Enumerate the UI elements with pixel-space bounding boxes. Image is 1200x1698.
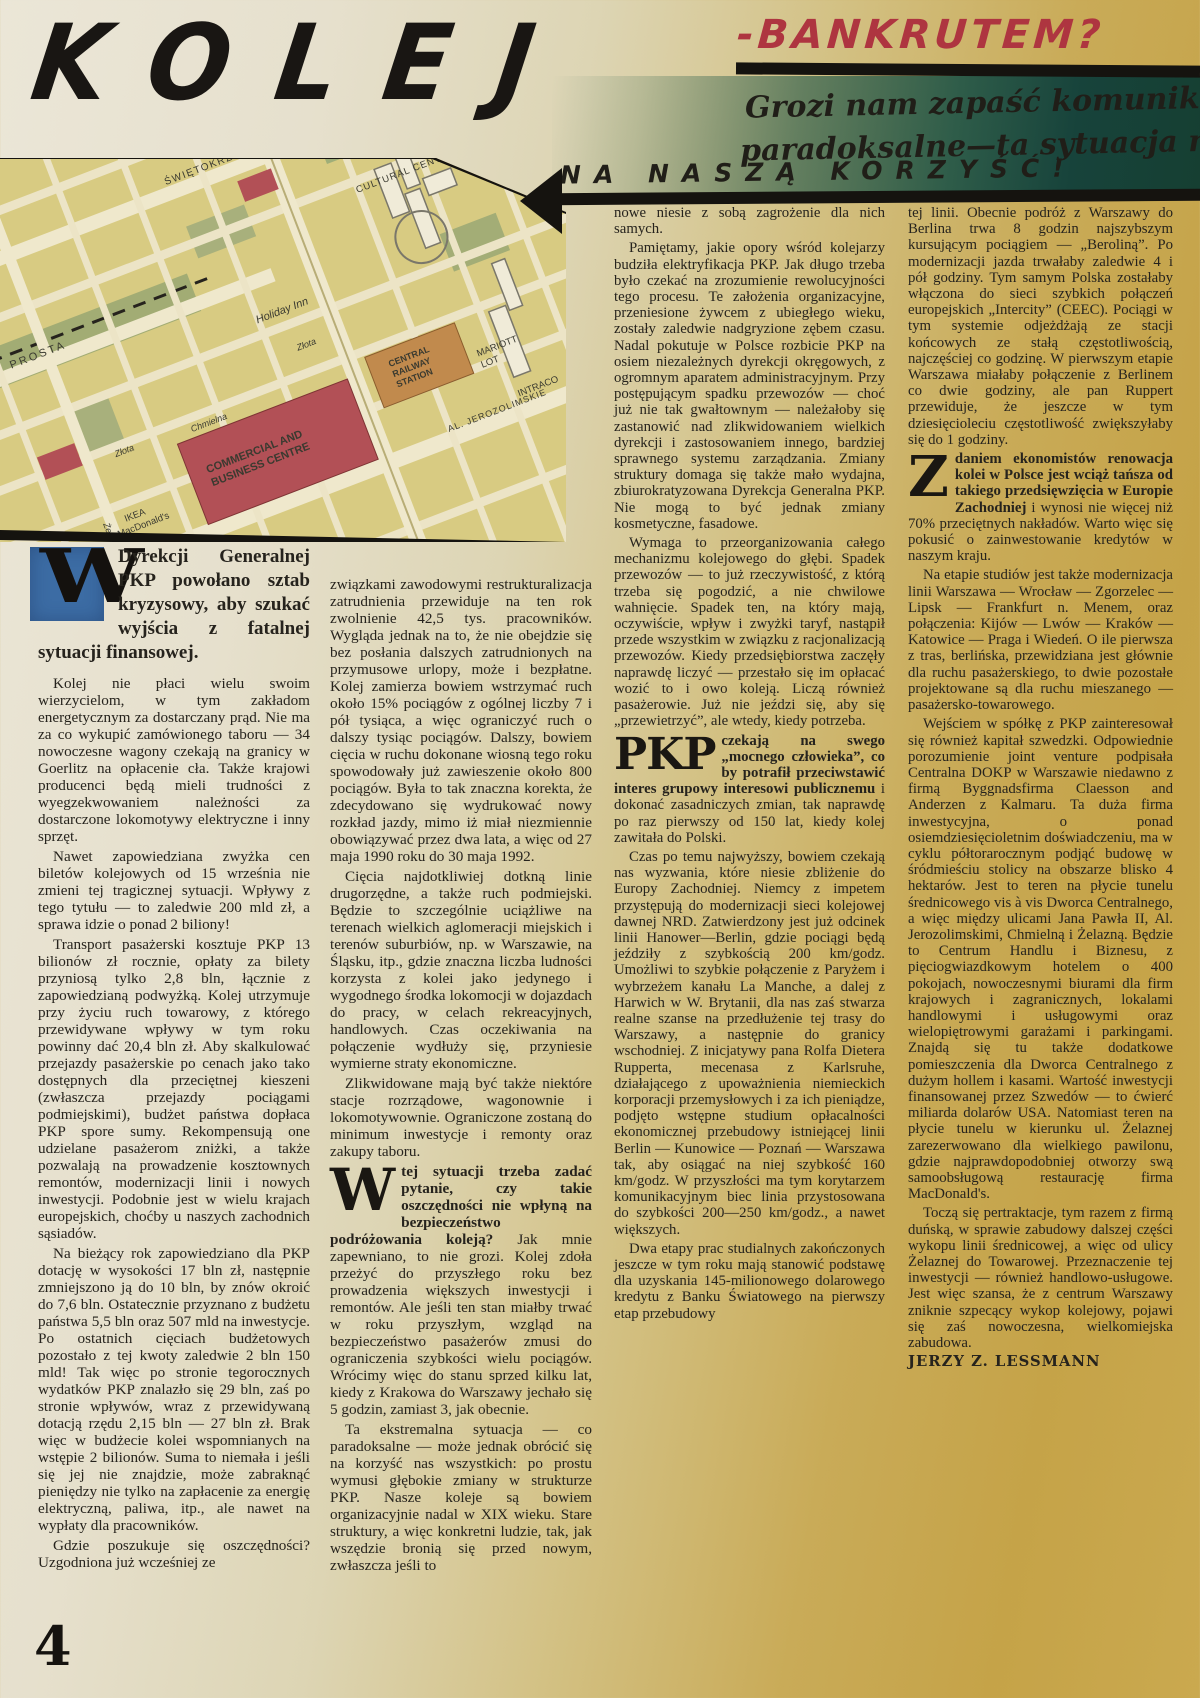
page-title: KOLEJ	[25, 2, 588, 124]
lead-paragraph: Dyrekcji Generalnej PKP powołano sztab k…	[38, 545, 310, 665]
city-map: ŚWIĘTOKRZYSKA PROSTA Holiday Inn Złota Z…	[0, 148, 566, 550]
paragraph: Na etapie studiów jest także modernizacj…	[908, 567, 1173, 713]
paragraph: Wejściem w spółkę z PKP zainteresował si…	[908, 716, 1173, 1202]
paragraph: Nawet zapowiedziana zwyżka cen biletów k…	[38, 848, 310, 933]
paragraph: Cięcia najdotkliwiej dotkną linie drugor…	[330, 868, 592, 1072]
column-4: tej linii. Obecnie podróż z Warszawy do …	[908, 205, 1173, 1373]
paragraph: nowe niesie z sobą zagrożenie dla nich s…	[614, 205, 885, 237]
arrow-left-icon	[520, 168, 562, 234]
title-suffix: -BANKRUTEM?	[735, 12, 1106, 58]
dropcap-z: Z	[908, 454, 949, 502]
author-byline: JERZY Z. LESSMANN	[908, 1354, 1173, 1370]
dropcap-paragraph: PKPczekają na swego „mocnego człowieka”,…	[614, 733, 885, 846]
paragraph-text: Jak mnie zapewniano, to nie grozi. Kolej…	[330, 1231, 592, 1418]
city-map-svg: ŚWIĘTOKRZYSKA PROSTA Holiday Inn Złota Z…	[0, 148, 566, 550]
paragraph: Zlikwidowane mają być także niektóre sta…	[330, 1075, 592, 1160]
paragraph: tej linii. Obecnie podróż z Warszawy do …	[908, 205, 1173, 448]
paragraph: Toczą się pertraktacje, tym razem z firm…	[908, 1205, 1173, 1351]
paragraph: Dwa etapy prac studialnych zakończonych …	[614, 1241, 885, 1322]
magazine-page: { "masthead": { "title": "KOLEJ", "title…	[0, 0, 1200, 1698]
page-number: 4	[34, 1614, 72, 1678]
dropcap-paragraph: Zdaniem ekonomistów renowacja kolei w Po…	[908, 451, 1173, 564]
column-3: nowe niesie z sobą zagrożenie dla nich s…	[614, 205, 885, 1325]
dropcap-paragraph: Wtej sytuacji trzeba zadać pytanie, czy …	[330, 1163, 592, 1418]
paragraph: Czas po temu najwyższy, bowiem czekają n…	[614, 849, 885, 1238]
paragraph: Kolej nie płaci wielu swoim wierzycielom…	[38, 675, 310, 845]
paragraph: Transport pasażerski kosztuje PKP 13 bil…	[38, 936, 310, 1242]
paragraph: związkami zawodowymi restrukturalizacja …	[330, 576, 592, 865]
paragraph: Ta ekstremalna sytuacja — co paradoksaln…	[330, 1421, 592, 1574]
column-1: Dyrekcji Generalnej PKP powołano sztab k…	[38, 545, 310, 1574]
dropcap-pkp: PKP	[614, 736, 715, 773]
paragraph: Gdzie poszukuje się oszczędności? Uzgodn…	[38, 1537, 310, 1571]
paragraph: Wymaga to przeorganizowania całego mecha…	[614, 535, 885, 729]
dropcap-spacer	[38, 545, 118, 619]
paragraph: Pamiętamy, jakie opory wśród kolejarzy b…	[614, 240, 885, 532]
column-2: związkami zawodowymi restrukturalizacja …	[330, 576, 592, 1577]
dropcap-w-col2: W	[330, 1166, 395, 1215]
paragraph: Na bieżący rok zapowiedziano dla PKP dot…	[38, 1245, 310, 1534]
